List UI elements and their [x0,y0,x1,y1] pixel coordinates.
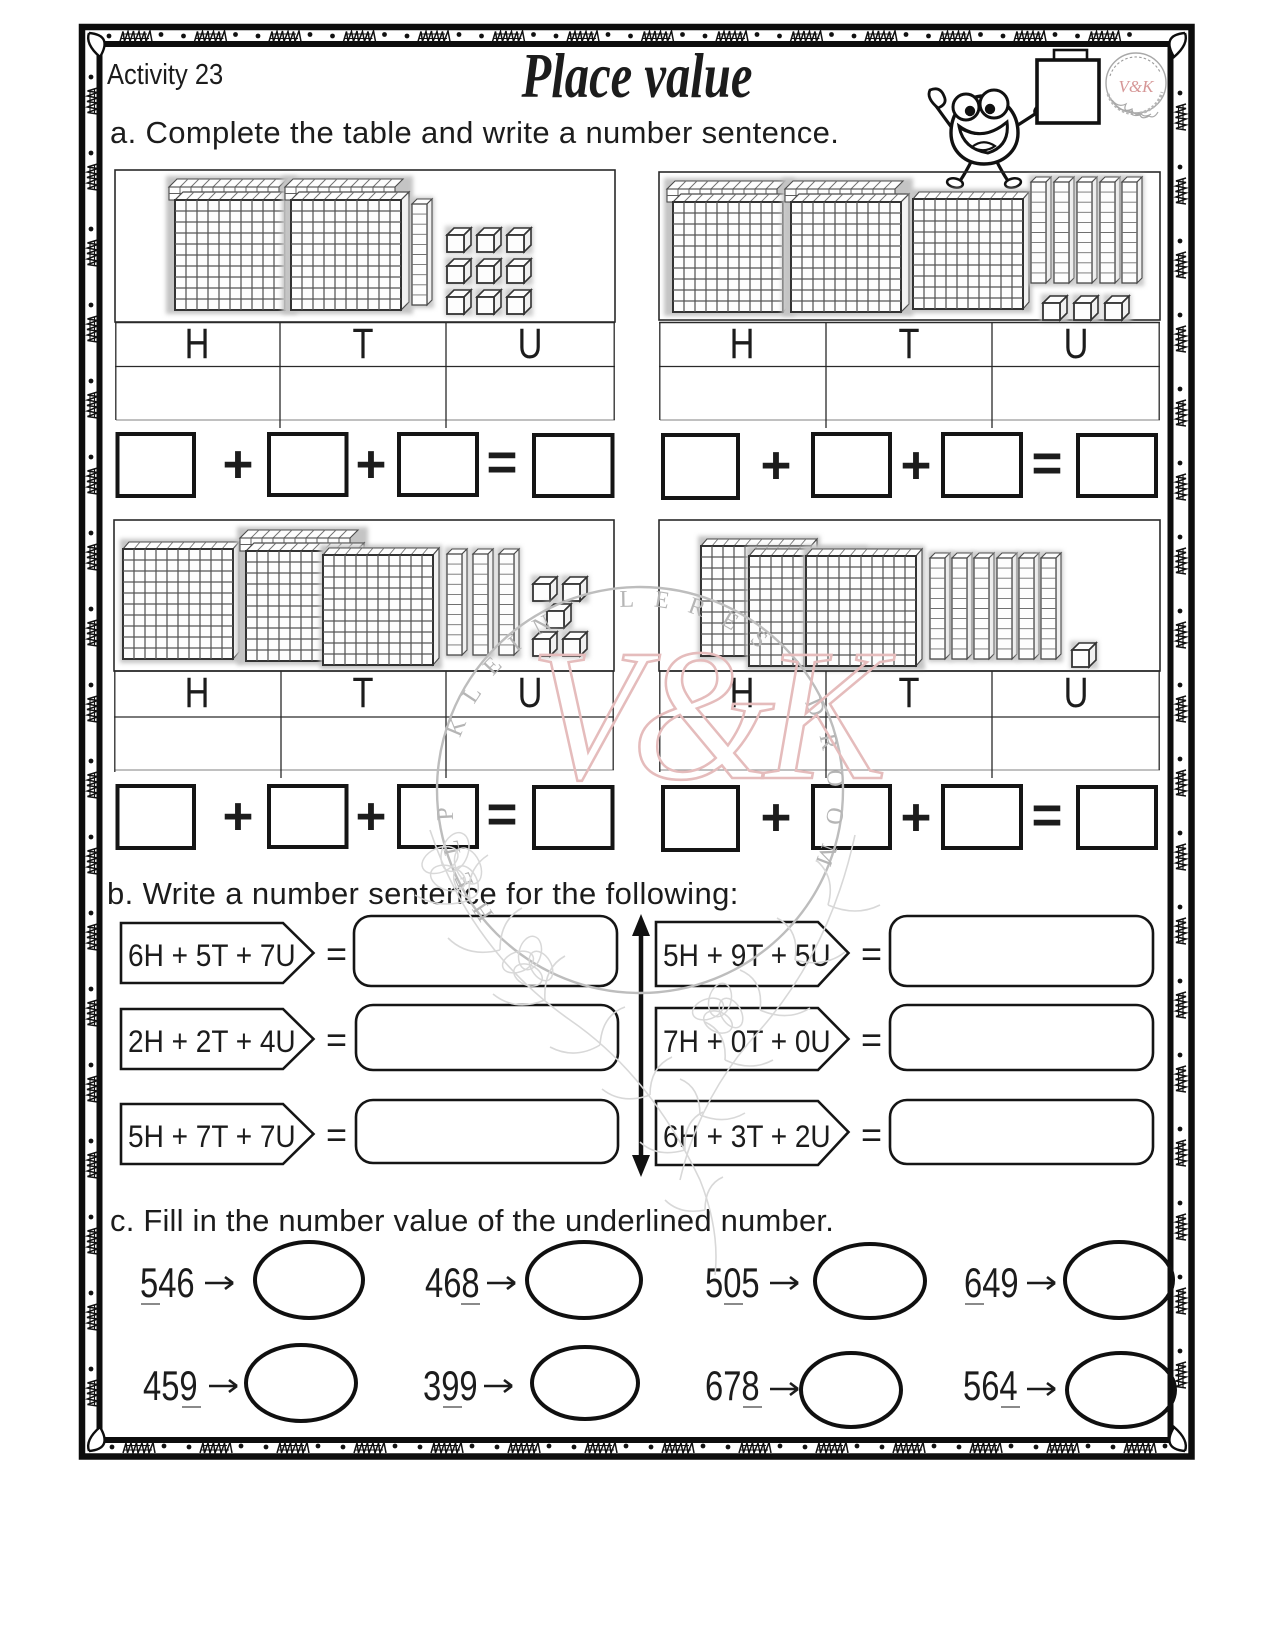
svg-text:6H + 5T + 7U: 6H + 5T + 7U [128,939,296,974]
svg-text:678: 678 [705,1362,760,1409]
svg-text:5H + 9T + 5U: 5H + 9T + 5U [663,939,831,974]
svg-text:T: T [352,669,373,716]
svg-text:=: = [487,433,518,492]
svg-text:+: + [356,435,387,494]
svg-text:+: + [901,788,932,847]
svg-text:=: = [861,1019,882,1060]
svg-text:+: + [901,436,932,495]
svg-text:V&K: V&K [530,611,896,819]
svg-text:=: = [326,933,347,974]
svg-text:=: = [1032,434,1063,493]
svg-text:=: = [326,1114,347,1155]
svg-text:U: U [1064,320,1089,367]
svg-text:Place value: Place value [521,41,753,112]
svg-text:7H + 0T + 0U: 7H + 0T + 0U [663,1025,831,1060]
svg-text:=: = [1032,786,1063,845]
svg-text:=: = [326,1019,347,1060]
svg-text:T: T [352,320,373,367]
svg-text:T: T [898,320,919,367]
svg-text:T: T [898,669,919,716]
svg-text:U: U [518,320,543,367]
svg-text:a. Complete the table and writ: a. Complete the table and write a number… [110,115,839,150]
svg-text:459: 459 [143,1362,198,1409]
svg-text:b. Write a number sentence for: b. Write a number sentence for the follo… [107,876,739,911]
svg-text:H: H [185,320,210,367]
svg-text:H: H [730,320,755,367]
svg-text:+: + [761,436,792,495]
svg-text:2H + 2T + 4U: 2H + 2T + 4U [128,1025,296,1060]
svg-text:546: 546 [140,1259,195,1306]
svg-text:+: + [223,435,254,494]
svg-text:+: + [356,787,387,846]
svg-text:H: H [185,669,210,716]
svg-text:=: = [487,785,518,844]
svg-text:c. Fill in the number value of: c. Fill in the number value of the under… [110,1203,834,1238]
svg-text:=: = [861,933,882,974]
svg-text:+: + [223,787,254,846]
svg-text:564: 564 [963,1362,1018,1409]
svg-text:V&K: V&K [1119,77,1156,96]
svg-text:=: = [861,1114,882,1155]
svg-text:U: U [1064,669,1089,716]
svg-text:5H + 7T + 7U: 5H + 7T + 7U [128,1120,296,1155]
svg-text:649: 649 [964,1259,1019,1306]
svg-text:Activity 23: Activity 23 [107,57,223,90]
svg-text:399: 399 [423,1362,478,1409]
svg-text:505: 505 [705,1259,760,1306]
svg-text:468: 468 [425,1259,480,1306]
